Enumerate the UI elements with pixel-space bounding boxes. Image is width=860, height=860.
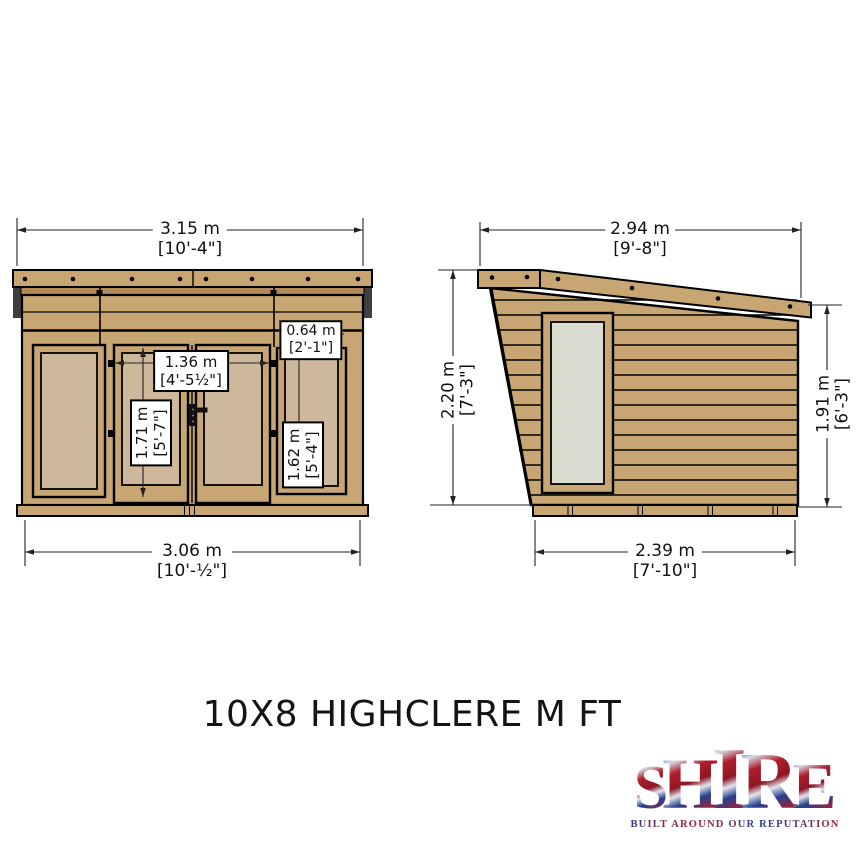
dim-imperial: [7'-10"] xyxy=(633,561,697,581)
side-elevation xyxy=(478,270,811,516)
logo-letter: R xyxy=(740,746,798,818)
shire-logo: S H I R E BUILT AROUND OUR REPUTATION xyxy=(620,740,850,830)
dim-imperial: [10'-½"] xyxy=(157,561,227,581)
dim-imperial: [5'-4"] xyxy=(303,429,321,482)
dim-metric: 1.71 m xyxy=(133,407,151,460)
dim-imperial: [9'-8"] xyxy=(610,239,670,259)
dim-window-height: 1.62 m [5'-4"] xyxy=(282,422,324,489)
dim-metric: 2.94 m xyxy=(610,219,670,239)
dim-metric: 1.62 m xyxy=(285,429,303,482)
logo-tagline: BUILT AROUND OUR REPUTATION xyxy=(620,819,850,830)
eave-strip xyxy=(21,287,364,295)
roof-trim-left xyxy=(13,287,21,318)
logo-letter: H xyxy=(662,752,718,817)
roof-trim-right xyxy=(364,287,372,318)
dim-imperial: [10'-4"] xyxy=(158,239,222,259)
dim-metric: 1.36 m xyxy=(160,353,222,371)
dim-door-height: 1.71 m [5'-7"] xyxy=(130,400,172,467)
side-window-glass xyxy=(551,322,604,484)
dim-imperial: [6'-3"] xyxy=(833,375,852,433)
dim-imperial: [4'-5½"] xyxy=(160,371,222,389)
dim-imperial: [2'-1"] xyxy=(286,340,335,357)
dim-front-height: 2.20 m [7'-3"] xyxy=(439,356,478,424)
dim-imperial: [5'-7"] xyxy=(151,407,169,460)
dim-front-base-width: 3.06 m [10'-½"] xyxy=(152,541,232,581)
product-diagram-page: 3.15 m [10'-4"] 3.06 m [10'-½"] 2.94 m [… xyxy=(0,0,860,860)
dim-rear-height: 1.91 m [6'-3"] xyxy=(814,370,853,438)
front-window-left-glass xyxy=(41,353,97,489)
product-title: 10X8 HIGHCLERE M FT xyxy=(203,694,622,735)
dim-metric: 2.39 m xyxy=(633,541,697,561)
side-fascia-block xyxy=(478,270,540,288)
front-base xyxy=(17,505,368,516)
dim-metric: 3.15 m xyxy=(158,219,222,239)
dim-metric: 3.06 m xyxy=(157,541,227,561)
dim-metric: 0.64 m xyxy=(286,323,335,340)
dim-imperial: [7'-3"] xyxy=(458,361,477,419)
dim-side-base-depth: 2.39 m [7'-10"] xyxy=(628,541,702,581)
shire-logo-word: S H I R E xyxy=(620,740,850,819)
side-wall xyxy=(490,288,798,505)
dim-metric: 1.91 m xyxy=(814,375,833,433)
dim-metric: 2.20 m xyxy=(439,361,458,419)
dim-door-width: 1.36 m [4'-5½"] xyxy=(153,350,229,392)
dim-window-width: 0.64 m [2'-1"] xyxy=(279,320,342,360)
logo-letter: E xyxy=(792,757,836,816)
dim-front-overall-width: 3.15 m [10'-4"] xyxy=(153,219,227,259)
dim-side-overall-depth: 2.94 m [9'-8"] xyxy=(605,219,675,259)
